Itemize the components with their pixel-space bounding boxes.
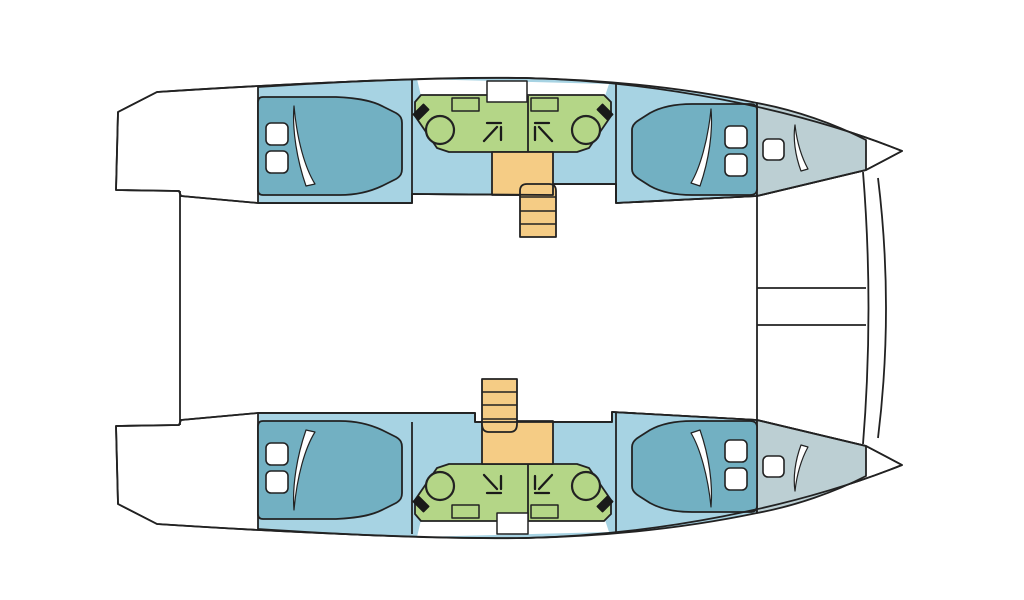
- cabinet-icon: [452, 98, 479, 111]
- cabinet-icon: [452, 505, 479, 518]
- pillow: [725, 154, 747, 176]
- pillow: [266, 151, 288, 173]
- forward-cabin-port: [632, 104, 757, 195]
- sink-icon: [426, 472, 454, 500]
- foredeck-walkway-rails: [757, 288, 866, 325]
- bow-crossbeam-outer-arc: [878, 178, 886, 438]
- pillow: [725, 126, 747, 148]
- sink-icon: [572, 472, 600, 500]
- pillow: [725, 440, 747, 462]
- forward-cabin-starboard: [632, 421, 757, 512]
- cabinet-icon: [531, 98, 558, 111]
- bathroom-door: [497, 513, 528, 534]
- cabinet-icon: [531, 505, 558, 518]
- floor-plan-page: [0, 0, 1024, 600]
- pillow: [266, 443, 288, 465]
- aft-cabin-starboard: [258, 421, 402, 519]
- sink-icon: [572, 116, 600, 144]
- aft-cabin-port: [258, 97, 402, 195]
- bow-crossbeam-inner-arc: [863, 172, 869, 444]
- pillow: [266, 471, 288, 493]
- pillow: [763, 456, 784, 477]
- double-bed: [258, 421, 402, 519]
- port-hull-interior: [258, 78, 866, 237]
- pillow: [763, 139, 784, 160]
- sink-icon: [426, 116, 454, 144]
- pillow: [725, 468, 747, 490]
- pillow: [266, 123, 288, 145]
- catamaran-floor-plan: [0, 0, 1024, 600]
- bathroom-door: [487, 81, 527, 102]
- starboard-hull-interior: [258, 379, 866, 538]
- double-bed: [258, 97, 402, 195]
